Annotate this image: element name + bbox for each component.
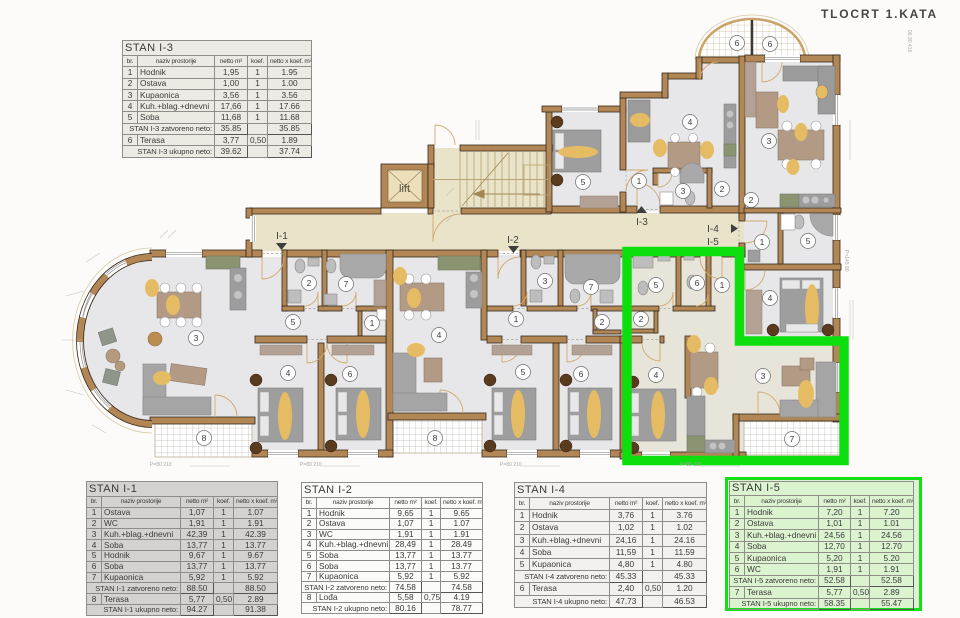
svg-text:1: 1 [637, 176, 642, 186]
svg-text:1: 1 [514, 314, 519, 324]
svg-text:P=80 210: P=80 210 [680, 462, 702, 468]
svg-text:8: 8 [202, 433, 207, 443]
svg-text:5: 5 [291, 317, 296, 327]
svg-text:1: 1 [760, 237, 765, 247]
svg-text:8: 8 [433, 433, 438, 443]
svg-text:2: 2 [749, 195, 754, 205]
svg-text:5: 5 [654, 280, 659, 290]
svg-text:7: 7 [589, 282, 594, 292]
svg-text:5: 5 [806, 236, 811, 246]
svg-text:P=145 90: P=145 90 [843, 250, 849, 272]
svg-text:7: 7 [344, 279, 349, 289]
svg-text:1: 1 [370, 318, 375, 328]
svg-text:I-1: I-1 [276, 231, 288, 242]
svg-text:6: 6 [579, 369, 584, 379]
svg-text:I-2: I-2 [507, 235, 519, 246]
svg-text:2: 2 [720, 184, 725, 194]
svg-text:2: 2 [600, 317, 605, 327]
svg-text:7: 7 [790, 434, 795, 444]
svg-text:P=80 210: P=80 210 [300, 462, 322, 468]
svg-text:3: 3 [761, 371, 766, 381]
svg-text:06.90 416: 06.90 416 [906, 30, 912, 52]
svg-text:6: 6 [695, 278, 700, 288]
svg-text:3: 3 [543, 276, 548, 286]
svg-text:4: 4 [768, 293, 773, 303]
svg-text:lift: lift [399, 183, 410, 195]
svg-text:6: 6 [348, 369, 353, 379]
svg-text:4: 4 [286, 368, 291, 378]
svg-text:P=80 210: P=80 210 [500, 462, 522, 468]
svg-text:I-4: I-4 [707, 224, 719, 235]
svg-text:P=80 210: P=80 210 [150, 462, 172, 468]
svg-text:3: 3 [767, 136, 772, 146]
svg-text:I-5: I-5 [707, 237, 719, 248]
svg-text:6: 6 [735, 38, 740, 48]
svg-text:I-3: I-3 [636, 217, 648, 228]
svg-text:4: 4 [437, 330, 442, 340]
svg-text:3: 3 [194, 333, 199, 343]
svg-text:3: 3 [681, 186, 686, 196]
svg-text:4: 4 [654, 370, 659, 380]
svg-text:2: 2 [639, 314, 644, 324]
svg-text:5: 5 [581, 177, 586, 187]
svg-text:5: 5 [521, 367, 526, 377]
svg-text:4: 4 [688, 117, 693, 127]
svg-text:2: 2 [307, 278, 312, 288]
svg-text:1: 1 [720, 280, 725, 290]
svg-text:6: 6 [768, 39, 773, 49]
